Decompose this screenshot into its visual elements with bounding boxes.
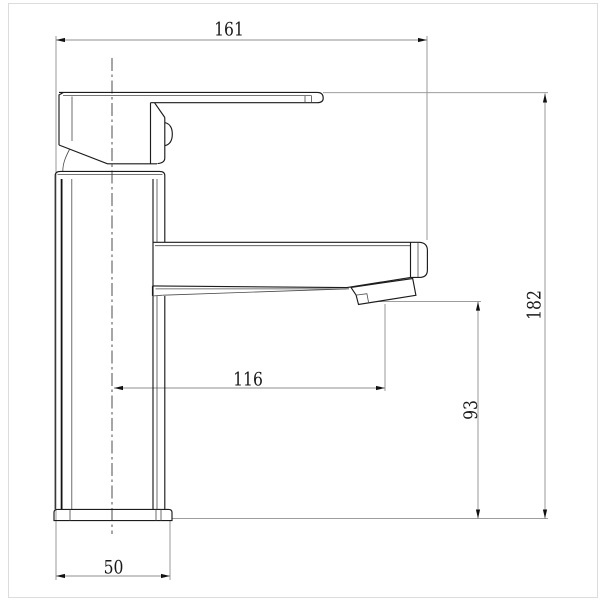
extension-lines [56, 36, 548, 580]
body-collar [55, 171, 165, 179]
dim-overall-length-label: 161 [214, 19, 244, 41]
arrow-left-icon [56, 574, 65, 578]
spout-tip [411, 242, 428, 277]
faucet-technical-drawing: 161 182 116 93 50 [0, 0, 600, 600]
handle-body-bevel [155, 103, 165, 118]
spout-underside [153, 277, 411, 287]
dim-base-width-label: 50 [104, 557, 124, 579]
aerator [351, 279, 416, 305]
arrow-up-icon [543, 94, 547, 103]
arrow-right-icon [376, 386, 385, 390]
base-flange-inner-lines [70, 509, 161, 520]
arrow-left-icon [56, 38, 65, 42]
arrow-up-icon [476, 302, 480, 311]
technical-drawing-canvas: 161 182 116 93 50 [0, 0, 600, 600]
handle-body-left [59, 92, 64, 145]
faucet-outline [54, 92, 427, 520]
handle-bulge [165, 123, 173, 146]
dim-outlet-height-label: 93 [461, 400, 483, 420]
arrow-down-icon [476, 510, 480, 519]
handle-body-right-outer [158, 118, 165, 164]
base-flange [54, 509, 172, 520]
spout-underside-slant [163, 289, 349, 295]
spout-root-bottom [153, 295, 163, 296]
dim-spout-reach-label: 116 [233, 369, 263, 391]
handle-lever [59, 92, 323, 102]
neck-curve [63, 150, 70, 172]
dimension-lines [56, 38, 547, 578]
dim-overall-height-label: 182 [524, 290, 546, 320]
arrow-left-icon [114, 386, 123, 390]
arrow-right-icon [418, 38, 427, 42]
arrow-down-icon [543, 510, 547, 519]
handle-body-bottom [59, 145, 157, 164]
arrow-right-icon [161, 574, 170, 578]
